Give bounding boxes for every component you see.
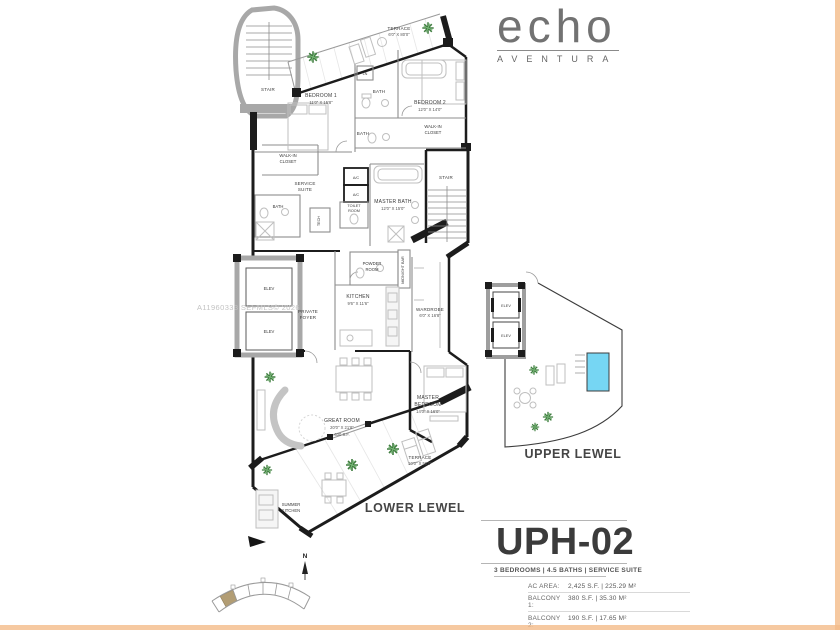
stat-value: 2,425 S.F. | 225.29 M² [568,583,636,590]
ac2-label: A/C [353,193,360,197]
stat-label: AC AREA: [528,583,568,590]
pennant-icon [248,536,266,547]
terrace-top-label: TERRACE [388,26,411,31]
rule-mid [481,563,627,564]
terrace-lower-label: TERRACE [409,455,432,460]
lower-level-caption: LOWER LEWEL [365,501,465,515]
bath2-label: BATH [357,131,369,136]
mls-watermark: A11960333 SEFMLS© 2026 [197,303,300,312]
stat-row-balcony1: BALCONY 1: 380 S.F. | 35.30 M² [528,593,690,613]
walkin-right-label2: CLOSET [425,130,442,135]
ac1-label: A/C [353,176,360,180]
stair-mid-label: STAIR [439,175,453,180]
walkin-left-label1: WALK-IN [279,153,296,158]
service-suite-label2: SUITE [298,187,312,192]
toilet-room-label2: ROOM [348,209,360,213]
photo-edge-bottom [0,625,840,630]
kitchen-label: KITCHEN [346,294,370,300]
floorplan-sheet: TERRACE 6'0" X 80'0" STAIR BEDROOM 1 11'… [0,0,840,630]
highlighted-unit [220,590,237,607]
summer-kitchen-label2: KITCHEN [282,508,300,513]
master-bedroom-dims: 14'0" X 16'0" [416,409,440,414]
bedroom2-dims: 12'0" X 14'0" [418,107,442,112]
stair-top-label: STAIR [261,87,275,92]
powder-label1: POWDER [363,261,382,266]
elev1-label: ELEV [264,286,275,291]
bath1-label: BATH [373,89,385,94]
rule-summary [494,576,606,577]
walkin-right-label1: WALK-IN [424,124,441,129]
kitchen-dims: 9'6" X 11'6" [347,301,369,306]
stat-label: BALCONY 1: [528,595,568,609]
floorplan-drawing: TERRACE 6'0" X 80'0" STAIR BEDROOM 1 11'… [0,0,840,630]
master-bedroom-label2: BEDROOM [414,402,441,408]
terrace-top-dims: 6'0" X 80'0" [388,32,410,37]
great-room-label: GREAT ROOM [324,418,360,424]
elev2-label: ELEV [264,329,275,334]
powder-label2: ROOM [365,267,379,272]
north-compass: N [302,553,308,580]
midnight-bar-label: MIDNIGHT BAR [401,256,405,284]
tech-label: TECH [317,216,321,227]
unit-title: UPH-02 [496,522,711,562]
bedroom1-dims: 11'0" X 15'8" [309,100,333,105]
bedroom1-label: BEDROOM 1 [305,93,337,99]
north-label: N [303,553,308,560]
terrace-lower-dims: 10'0" X 50'0" [408,461,432,466]
brand-name: echo [497,2,637,50]
bath3-label: BATH [273,204,284,209]
exterior-stair-tower [236,8,298,150]
bedroom2-label: BEDROOM 2 [414,100,446,106]
unit-info-block: UPH-02 3 BEDROOMS | 4.5 BATHS | SERVICE … [481,520,711,630]
brand-logo: echo AVENTURA [497,2,637,64]
upper-elev1-label: ELEV [501,304,511,308]
great-room-dims: 20'0" X 21'8" [330,425,354,430]
wardrobe-label: WARDROBE [416,307,444,312]
photo-edge-right [835,0,840,630]
master-bath-dims: 12'0" X 15'0" [381,206,405,211]
brand-subname: AVENTURA [497,54,637,64]
linen-label: LN [363,72,368,76]
master-bath-label: MASTER BATH [374,199,412,205]
upper-elev2-label: ELEV [501,334,511,338]
upper-level-caption: UPPER LEWEL [525,447,622,461]
stats-table: AC AREA: 2,425 S.F. | 225.29 M² BALCONY … [528,580,690,630]
great-room-area: 630 S.F. [334,432,349,437]
stat-row-ac: AC AREA: 2,425 S.F. | 225.29 M² [528,580,690,593]
master-bedroom-label1: MASTER [417,395,439,401]
toilet-room-label1: TOILET [347,204,361,208]
walkin-left-label2: CLOSET [280,159,297,164]
wardrobe-dims: 6'0" X 16'8" [419,313,441,318]
foyer-label2: FOYER [300,315,317,320]
stat-value: 380 S.F. | 35.30 M² [568,595,627,609]
interior-stair [428,186,466,242]
unit-summary: 3 BEDROOMS | 4.5 BATHS | SERVICE SUITE [494,567,711,574]
pool [587,353,609,391]
upper-level-plan: ELEV ELEV UPPER LEWEL [485,272,622,461]
service-suite-label1: SERVICE [294,181,315,186]
foyer-label1: PRIVATE [298,309,318,314]
summer-kitchen-label1: SUMMER [282,502,301,507]
lower-level-plan: TERRACE 6'0" X 80'0" STAIR BEDROOM 1 11'… [233,8,471,536]
key-plan [212,536,310,612]
